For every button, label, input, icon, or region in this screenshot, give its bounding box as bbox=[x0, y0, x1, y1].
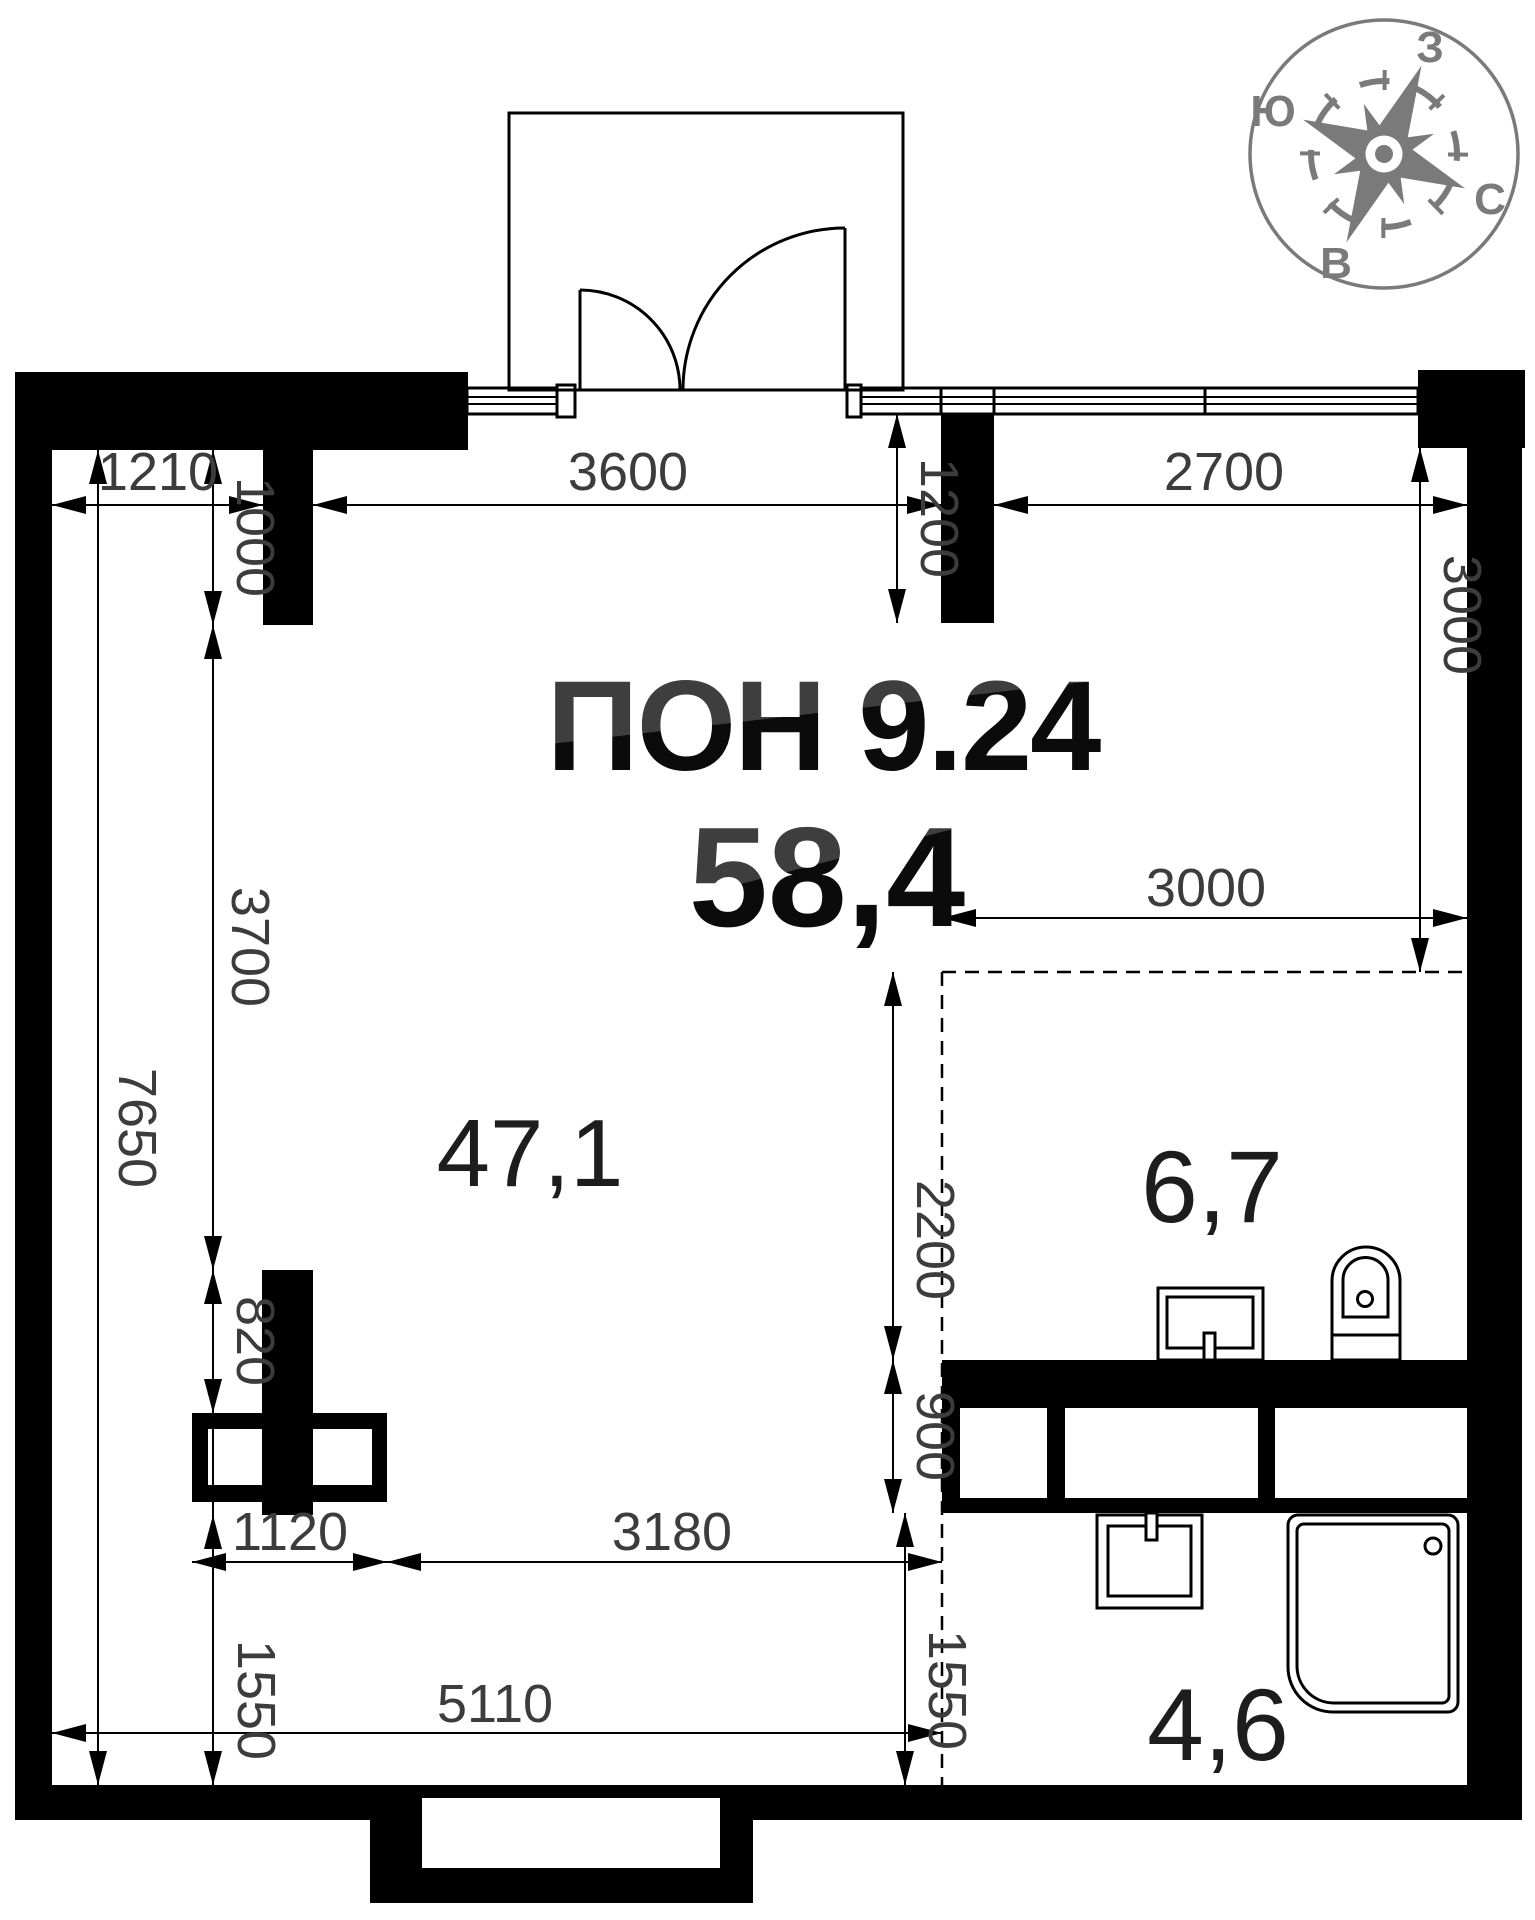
dim-san-zone-height: 2200 bbox=[905, 1180, 965, 1300]
plan-title: ПОН 9.24 bbox=[547, 655, 1102, 798]
wall-top-left-block bbox=[15, 372, 468, 450]
dim-right-zone-height: 3000 bbox=[1432, 555, 1492, 675]
labels: ПОН 9.24 58,4 47,1 6,7 4,6 bbox=[437, 655, 1289, 1782]
shower-tray bbox=[1288, 1515, 1458, 1712]
bottom-protrusion-niche bbox=[422, 1798, 720, 1868]
total-area: 58,4 bbox=[689, 798, 965, 957]
window-segment-5 bbox=[1205, 388, 1418, 414]
sink-top bbox=[1158, 1288, 1263, 1360]
window-segment-4 bbox=[994, 388, 1205, 414]
window-segment-3 bbox=[941, 388, 994, 414]
compass-star-icon bbox=[1265, 31, 1502, 277]
shower-drain bbox=[1425, 1538, 1441, 1554]
toilet bbox=[1332, 1247, 1400, 1360]
dim-top-right: 2700 bbox=[1164, 442, 1284, 502]
shaft-cell-left bbox=[208, 1429, 262, 1485]
wall-left bbox=[15, 372, 52, 1820]
dim-right-bottom: 1550 bbox=[917, 1630, 977, 1750]
sanitary-cell-2 bbox=[1065, 1408, 1258, 1498]
sink-bottom bbox=[1097, 1513, 1202, 1608]
dim-right-zone-width: 3000 bbox=[1146, 858, 1266, 918]
shaft-cell-right bbox=[313, 1429, 372, 1485]
room-label-bathroom: 4,6 bbox=[1147, 1668, 1289, 1782]
room-label-living: 47,1 bbox=[437, 1100, 624, 1207]
wall-top-right-block bbox=[1418, 370, 1525, 448]
dim-top-left: 1210 bbox=[98, 442, 218, 502]
dim-left-total: 7650 bbox=[107, 1068, 167, 1188]
wall-bottom bbox=[15, 1785, 1522, 1820]
dim-san-zone-lower: 900 bbox=[905, 1391, 965, 1481]
dim-left-bottom: 1550 bbox=[226, 1640, 286, 1760]
dim-pier-right-height: 1200 bbox=[909, 458, 969, 578]
balcony bbox=[509, 113, 903, 390]
door-swing-left bbox=[580, 290, 680, 390]
floorplan-page: 1210 3600 2700 3000 5110 1120 3180 1000 … bbox=[0, 0, 1535, 1920]
compass-letter-bottom: В bbox=[1320, 239, 1352, 288]
dim-top-center: 3600 bbox=[568, 442, 688, 502]
sanitary-cell-3 bbox=[1275, 1408, 1467, 1498]
dim-left-mid: 3700 bbox=[220, 887, 280, 1007]
compass-rose: З Ю С В bbox=[1250, 20, 1518, 288]
compass-letter-left: Ю bbox=[1250, 87, 1295, 136]
compass-letter-right: С bbox=[1474, 175, 1506, 224]
dim-left-lower-pier: 820 bbox=[225, 1296, 285, 1386]
dim-bottom-total: 5110 bbox=[437, 1674, 553, 1734]
room-label-zone: 6,7 bbox=[1141, 1130, 1283, 1244]
door-swing-right bbox=[683, 228, 845, 390]
dim-pier-left-height: 1000 bbox=[225, 477, 285, 597]
floorplan-drawing: 1210 3600 2700 3000 5110 1120 3180 1000 … bbox=[0, 0, 1535, 1920]
wall-sanitary-band bbox=[942, 1360, 1467, 1408]
window-segment-2 bbox=[861, 388, 941, 414]
compass-letter-top: З bbox=[1416, 23, 1444, 72]
sanitary-cell-1 bbox=[960, 1408, 1047, 1498]
dim-bottom-inner: 3180 bbox=[612, 1502, 732, 1562]
dim-shaft-width: 1120 bbox=[232, 1502, 348, 1562]
